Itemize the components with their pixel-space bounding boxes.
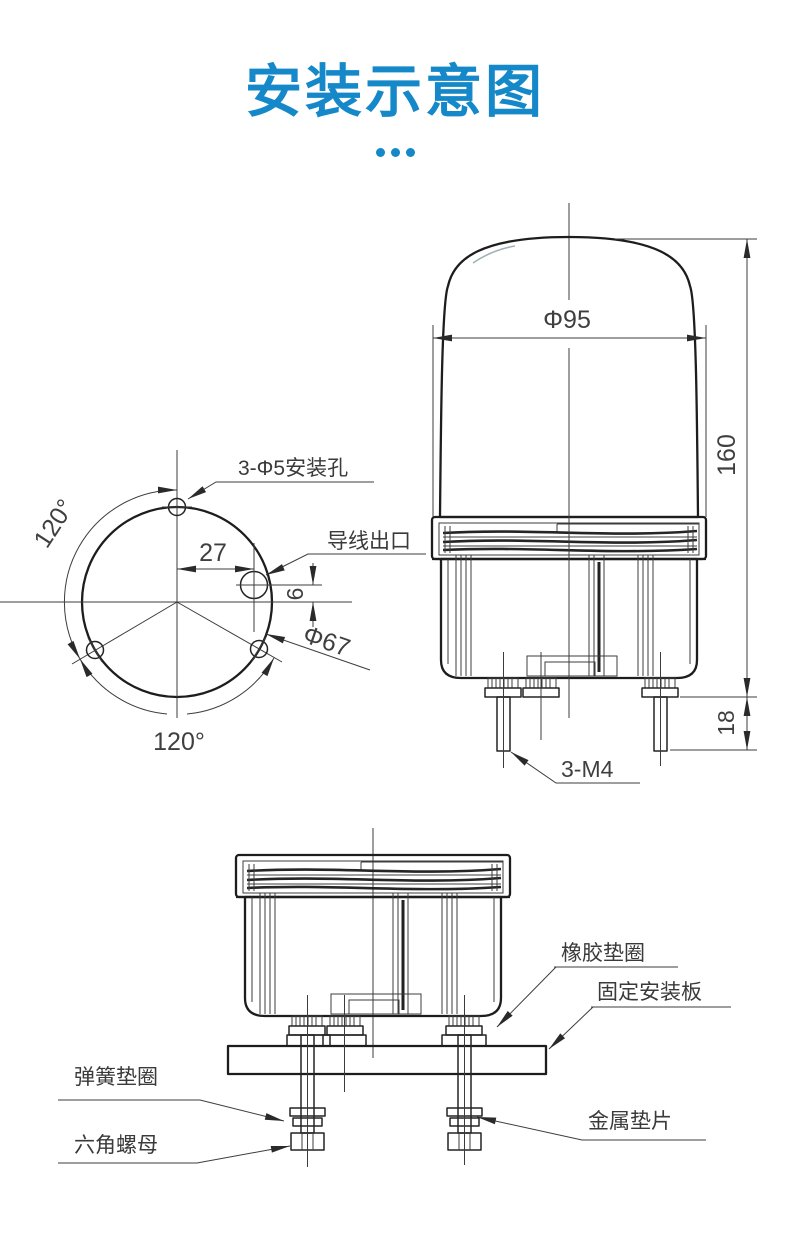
dim-phi95-text: Φ95 <box>543 306 591 334</box>
mounting-plate <box>228 1046 546 1074</box>
angle-left-text: 120° <box>28 494 80 553</box>
page: 安装示意图 <box>0 0 790 1246</box>
label-studs-text: 3-M4 <box>561 756 614 782</box>
technical-drawing: Φ95 160 18 3-M4 <box>0 0 790 1246</box>
label-mounting-plate-text: 固定安装板 <box>597 981 702 1004</box>
dim-angle-left: 120° <box>28 487 177 661</box>
dim-6: 6 <box>282 563 316 627</box>
front-view: Φ95 160 18 3-M4 <box>432 203 757 783</box>
installation-view: 橡胶垫圈 固定安装板 金属垫片 弹簧垫圈 六角螺母 <box>58 828 731 1167</box>
angle-bottom-text: 120° <box>153 728 205 756</box>
hole-layout-view: 120° 120° 27 6 <box>0 450 426 756</box>
label-mounting-plate: 固定安装板 <box>547 981 731 1051</box>
label-wire-outlet: 导线出口 <box>265 530 426 578</box>
dim-phi67: Φ67 <box>265 620 370 670</box>
dim-phi67-text: Φ67 <box>299 620 353 662</box>
label-spring-washer-text: 弹簧垫圈 <box>74 1066 158 1089</box>
dim-27: 27 <box>177 539 254 572</box>
dim-27-text: 27 <box>199 539 227 567</box>
dim-18-text: 18 <box>713 710 739 736</box>
label-hex-nut: 六角螺母 <box>58 1134 291 1163</box>
label-mount-holes-text: 3-Φ5安装孔 <box>238 457 348 480</box>
label-rubber-washer-text: 橡胶垫圈 <box>561 942 645 965</box>
label-hex-nut-text: 六角螺母 <box>74 1134 158 1157</box>
dim-160: 160 <box>615 239 757 697</box>
dome-highlight <box>473 246 515 263</box>
label-mount-holes: 3-Φ5安装孔 <box>186 457 374 502</box>
label-metal-shim-text: 金属垫片 <box>588 1110 672 1133</box>
dim-6-text: 6 <box>282 588 308 601</box>
label-studs: 3-M4 <box>509 749 640 783</box>
dim-160-text: 160 <box>713 434 741 476</box>
label-metal-shim: 金属垫片 <box>476 1110 706 1140</box>
stud-centerlines <box>308 995 465 1167</box>
label-wire-outlet-text: 导线出口 <box>327 530 411 553</box>
dim-18: 18 <box>670 697 757 750</box>
